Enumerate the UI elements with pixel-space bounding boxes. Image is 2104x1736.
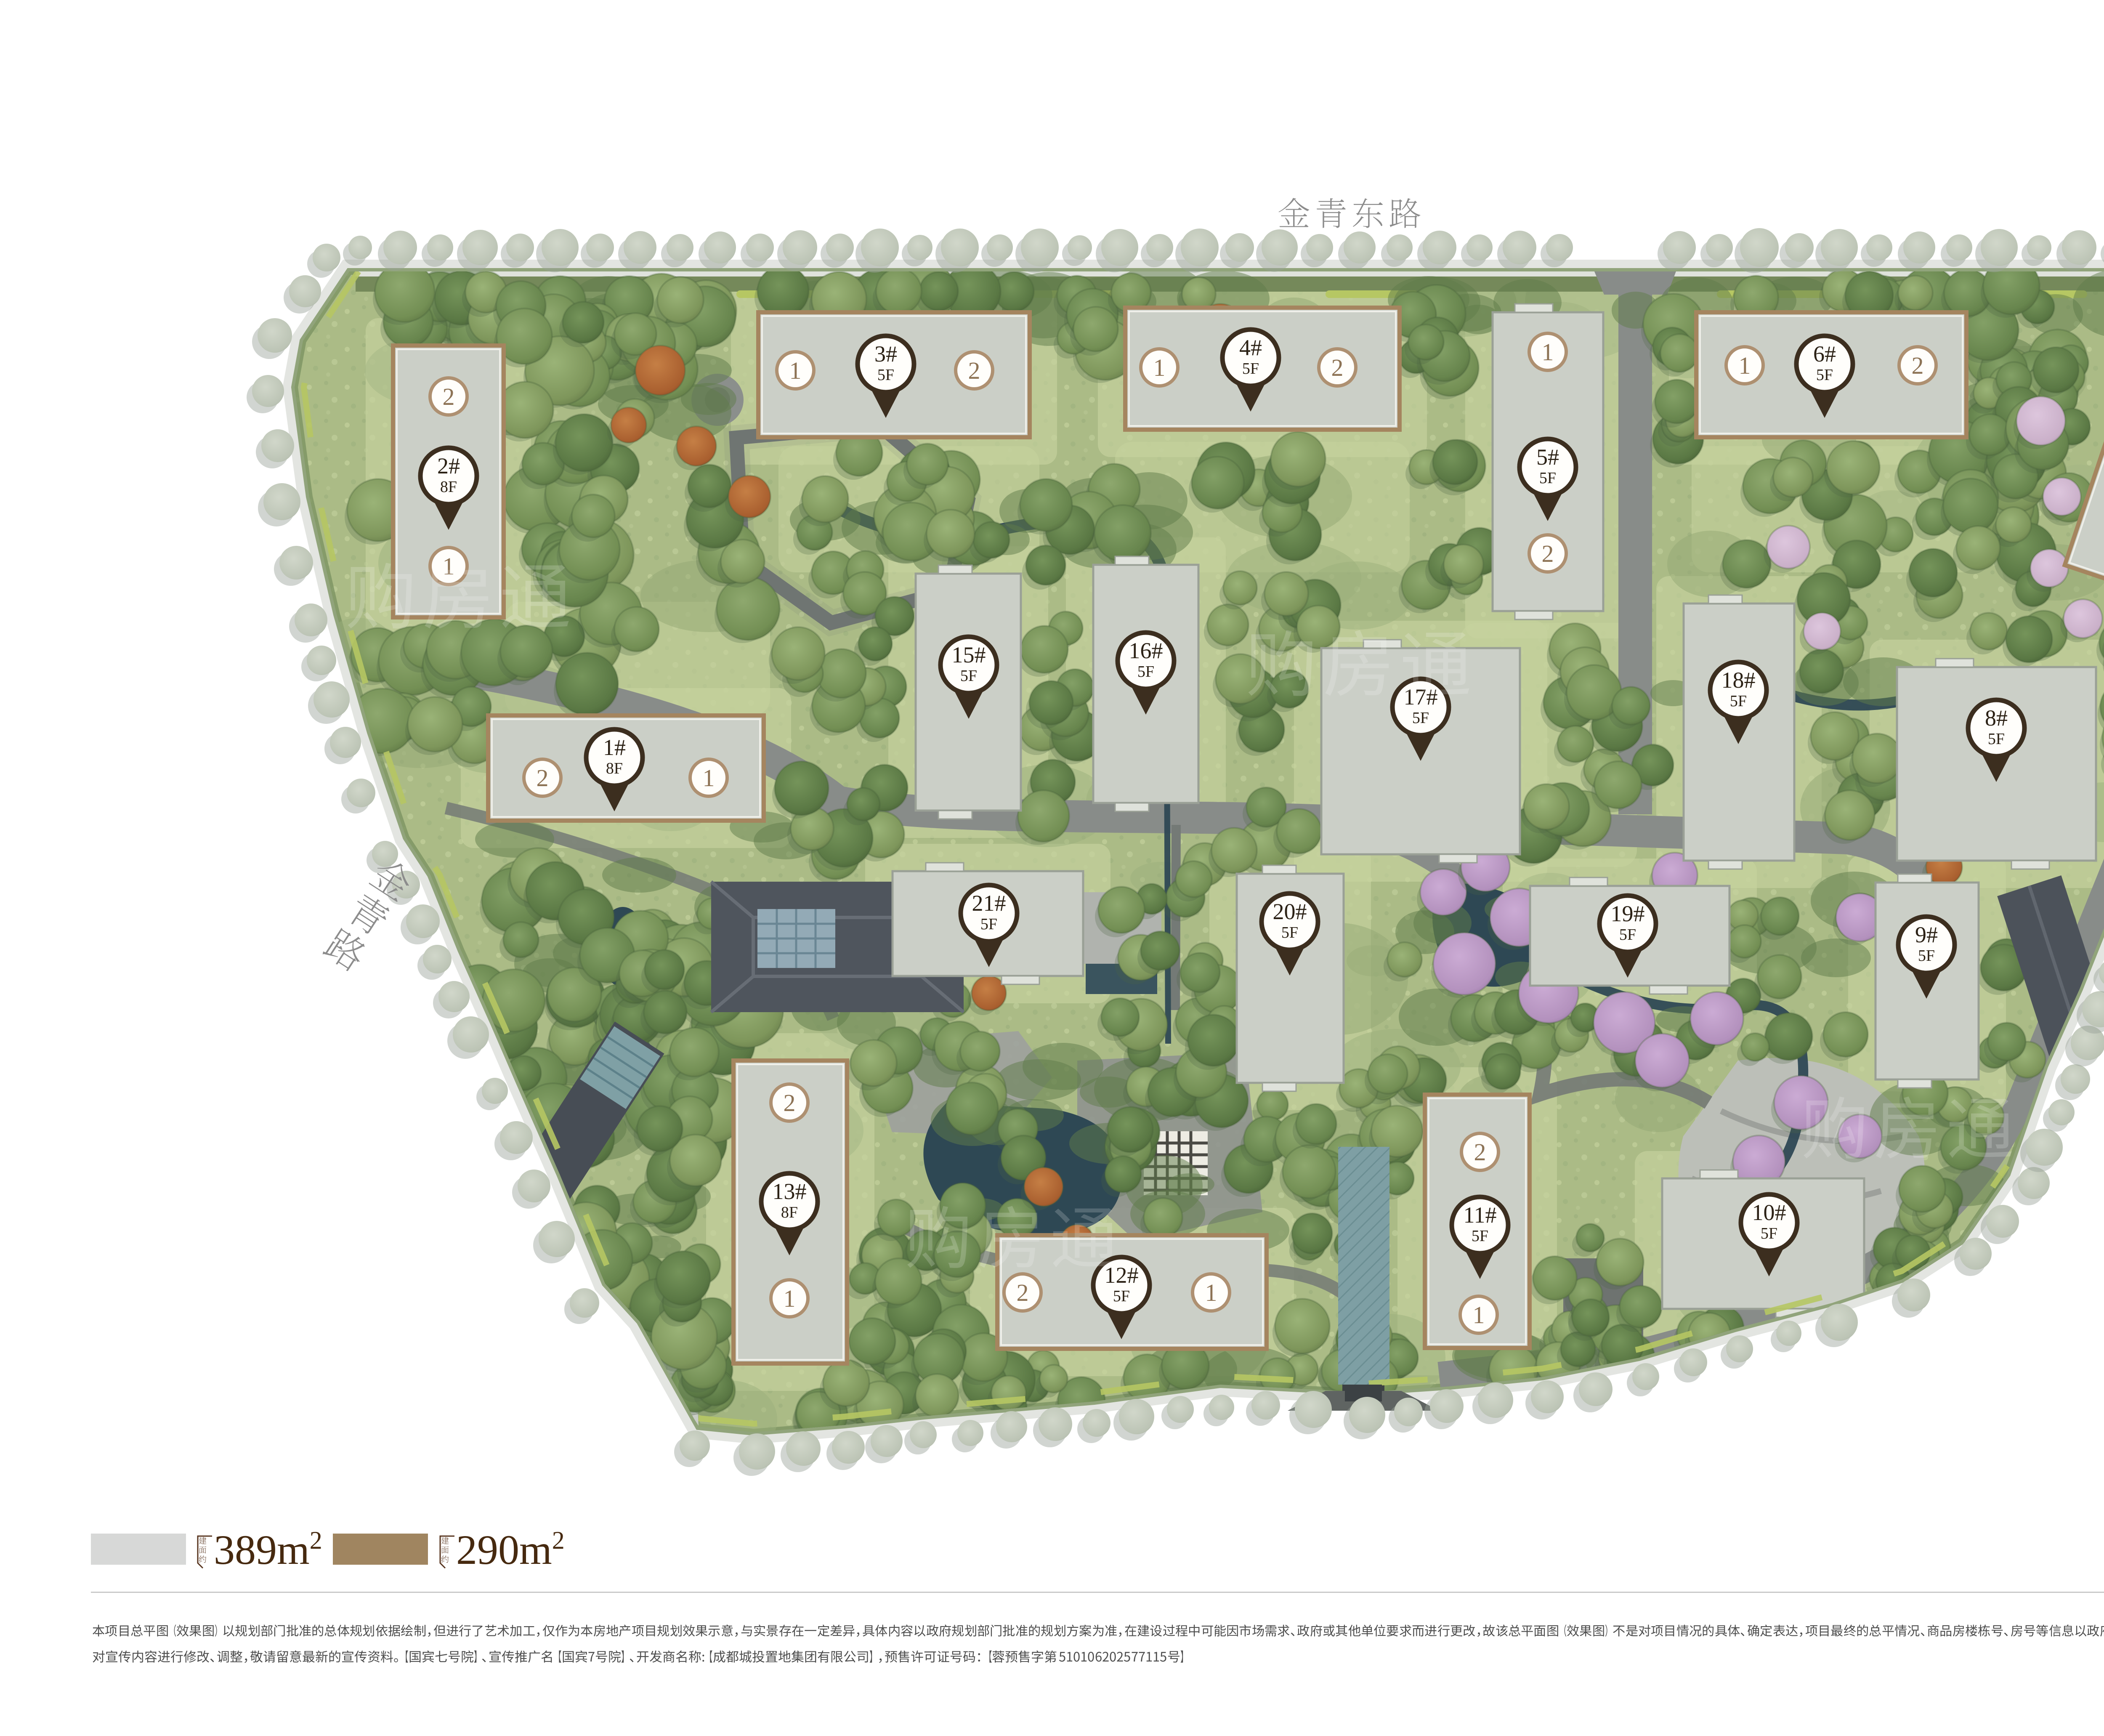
svg-text:1: 1 xyxy=(789,357,802,384)
svg-text:8F: 8F xyxy=(440,478,457,496)
svg-text:8F: 8F xyxy=(781,1204,798,1221)
svg-text:12#: 12# xyxy=(1105,1263,1139,1288)
svg-text:21#: 21# xyxy=(972,891,1006,916)
svg-text:5F: 5F xyxy=(1281,924,1298,941)
svg-text:6#: 6# xyxy=(1813,341,1836,367)
svg-text:1: 1 xyxy=(1739,352,1751,379)
svg-text:1: 1 xyxy=(784,1285,796,1312)
svg-text:5F: 5F xyxy=(1137,663,1154,681)
svg-text:5F: 5F xyxy=(1988,730,2005,748)
svg-text:2: 2 xyxy=(968,357,980,384)
svg-text:16#: 16# xyxy=(1129,638,1163,663)
svg-text:2: 2 xyxy=(784,1089,796,1117)
svg-text:13#: 13# xyxy=(773,1179,807,1204)
svg-text:2: 2 xyxy=(443,383,455,410)
svg-text:1: 1 xyxy=(443,553,455,580)
svg-text:5F: 5F xyxy=(877,366,894,384)
svg-text:10#: 10# xyxy=(1752,1200,1786,1225)
svg-text:2#: 2# xyxy=(437,453,460,479)
svg-text:5F: 5F xyxy=(1113,1287,1130,1305)
svg-text:5F: 5F xyxy=(980,915,997,933)
svg-text:5F: 5F xyxy=(1242,360,1259,378)
svg-text:5F: 5F xyxy=(1761,1225,1777,1242)
svg-text:15#: 15# xyxy=(952,642,986,667)
svg-text:2: 2 xyxy=(1474,1138,1486,1166)
svg-text:5F: 5F xyxy=(1472,1227,1488,1245)
svg-text:5F: 5F xyxy=(1619,926,1636,944)
svg-text:2: 2 xyxy=(1017,1279,1029,1306)
svg-text:5F: 5F xyxy=(1412,709,1429,727)
svg-text:5F: 5F xyxy=(1539,469,1556,487)
svg-text:4#: 4# xyxy=(1239,335,1262,360)
svg-text:20#: 20# xyxy=(1273,899,1307,924)
svg-text:5#: 5# xyxy=(1536,444,1559,470)
svg-text:5F: 5F xyxy=(1816,366,1833,384)
svg-text:1: 1 xyxy=(1153,354,1166,381)
svg-text:3#: 3# xyxy=(874,341,897,367)
svg-text:1#: 1# xyxy=(603,735,626,760)
svg-text:389m2: 389m2 xyxy=(214,1526,322,1573)
svg-text:8F: 8F xyxy=(606,760,623,777)
svg-text:1: 1 xyxy=(1473,1301,1485,1329)
svg-text:1: 1 xyxy=(1542,338,1554,366)
svg-text:2: 2 xyxy=(1912,352,1924,379)
svg-text:2: 2 xyxy=(537,764,549,792)
svg-text:19#: 19# xyxy=(1611,901,1645,926)
svg-text:2: 2 xyxy=(1331,354,1344,381)
svg-text:5F: 5F xyxy=(960,667,977,685)
svg-text:8#: 8# xyxy=(1985,705,2008,731)
svg-text:5F: 5F xyxy=(1918,947,1935,965)
svg-text:11#: 11# xyxy=(1464,1202,1497,1228)
svg-text:1: 1 xyxy=(1205,1279,1217,1306)
svg-text:1: 1 xyxy=(703,764,715,792)
svg-text:290m2: 290m2 xyxy=(456,1526,565,1573)
svg-text:18#: 18# xyxy=(1721,667,1756,693)
svg-text:9#: 9# xyxy=(1915,922,1938,947)
svg-text:5F: 5F xyxy=(1730,692,1747,710)
svg-text:2: 2 xyxy=(1542,540,1554,567)
